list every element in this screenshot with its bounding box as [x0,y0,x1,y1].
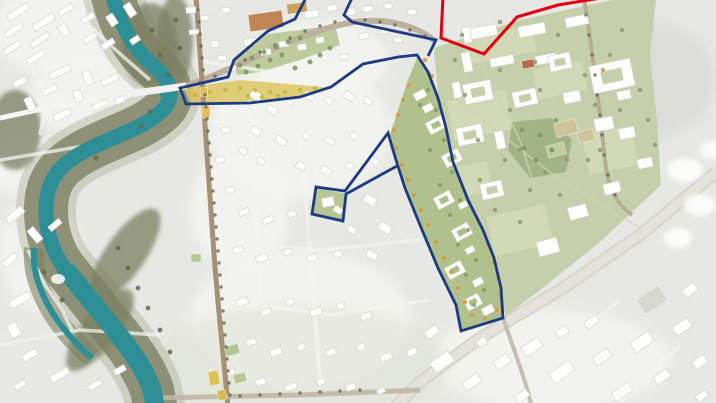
tree-icon [166,73,171,78]
tree-icon [268,90,273,95]
buildings [297,43,307,50]
tree-icon [593,73,596,76]
tree-icon [590,53,593,56]
tree-icon [338,389,341,392]
tree-icon [283,90,288,95]
buildings [408,9,417,15]
tree-icon [238,86,243,91]
tree-icon [246,94,251,99]
tree-icon [139,124,144,129]
tree-icon [225,357,228,360]
tree-icon [274,45,279,50]
tree-icon [288,36,291,39]
tree-icon [406,178,410,182]
tree-icon [593,103,597,107]
tree-icon [150,28,155,33]
tree-icon [587,33,590,36]
tree-icon [220,297,223,300]
tree-icon [442,256,446,260]
buildings [189,29,199,35]
tree-icon [550,148,555,153]
tree-icon [394,146,398,150]
tree-icon [224,345,227,348]
tree-icon [449,270,453,274]
tree-icon [318,53,323,58]
tree-icon [419,208,423,212]
tree-icon [483,316,487,320]
sports-fields-and-courts [191,254,201,262]
tree-icon [201,68,204,71]
tree-icon [448,213,452,217]
tree-icon [428,148,432,152]
tree-icon [226,369,229,372]
tree-icon [533,60,537,64]
tree-icon [298,391,301,394]
tree-icon [278,392,281,395]
tree-icon [554,118,558,122]
tree-icon [243,58,246,61]
tree-icon [646,118,650,122]
buildings [340,54,349,60]
tree-icon [298,88,303,93]
city-plan-map [0,0,716,403]
tree-icon [213,213,216,216]
buildings [186,7,196,14]
tree-icon [212,201,215,204]
buildings [359,32,370,39]
tree-icon [210,177,213,180]
tree-icon [463,93,467,97]
tree-icon [618,108,622,112]
tree-icon [256,64,261,69]
buildings [363,5,374,12]
tree-icon [276,94,281,99]
tree-icon [203,93,206,96]
tree-icon [193,93,198,98]
tree-icon [209,165,212,168]
tree-icon [219,285,222,288]
tree-icon [493,208,497,212]
tree-icon [538,88,542,92]
tree-icon [508,108,512,112]
tree-icon [528,188,532,192]
tree-icon [158,53,163,58]
tree-icon [638,88,642,92]
tree-icon [598,113,601,116]
sports-fields-and-courts [217,389,227,400]
tree-icon [227,381,230,384]
tree-icon [543,170,547,174]
tree-icon [565,158,569,162]
tree-icon [198,32,201,35]
tree-icon [601,68,605,72]
tree-icon [228,393,231,396]
tree-icon [558,193,562,197]
tree-icon [538,133,543,138]
tree-icon [472,303,476,307]
tree-icon [595,93,598,96]
tree-icon [482,288,486,292]
tree-icon [434,108,438,112]
tree-icon [426,88,430,92]
tree-icon [298,36,303,41]
buildings [211,40,220,48]
tree-icon [450,170,454,174]
tree-icon [268,58,273,63]
tree-icon [613,193,616,196]
tree-icon [456,243,460,247]
tree-icon [216,249,219,252]
tree-icon [215,237,218,240]
tree-icon [280,53,285,58]
tree-icon [458,198,462,202]
tree-icon [318,390,321,393]
buildings [316,36,325,43]
tree-icon [620,28,624,32]
tree-icon [556,33,560,37]
tree-icon [218,273,221,276]
tree-icon [146,306,151,311]
tree-icon [438,183,442,187]
tree-icon [518,220,522,224]
tree-icon [453,58,457,62]
tree-icon [464,273,468,277]
tree-icon [520,128,525,133]
tree-icon [470,313,474,317]
sports-fields-and-courts [521,59,534,69]
tree-icon [408,28,411,31]
tree-icon [126,266,131,271]
buildings [384,3,393,9]
tree-icon [313,86,318,91]
tree-icon [392,128,396,132]
tree-icon [260,95,265,100]
tree-icon [407,83,411,87]
tree-icon [303,29,306,32]
tree-icon [463,300,467,304]
tree-icon [223,88,228,93]
tree-icon [400,163,404,167]
tree-icon [598,148,602,152]
riverside-white-area [51,274,65,284]
tree-icon [401,98,405,102]
tree-icon [608,53,612,57]
tree-icon [136,286,141,291]
tree-icon [213,74,216,77]
tree-icon [442,138,446,142]
tree-icon [518,148,522,152]
tree-icon [503,158,507,162]
tree-icon [498,68,502,72]
tree-icon [474,258,478,262]
tree-icon [199,44,202,47]
tree-icon [238,63,243,68]
tree-icon [378,20,381,23]
tree-icon [460,33,464,37]
tree-icon [94,156,99,161]
tree-icon [178,46,183,51]
tree-icon [253,88,258,93]
tree-icon [318,24,321,27]
tree-icon [286,40,291,45]
tree-icon [333,20,336,23]
buildings [327,4,338,11]
tree-icon [196,8,199,11]
tree-icon [238,394,241,397]
tree-icon [262,50,267,55]
tree-icon [200,56,203,59]
tree-icon [211,189,214,192]
tree-icon [602,153,605,156]
buildings [201,15,209,21]
tree-icon [168,350,173,355]
tree-icon [206,129,209,132]
tree-icon [478,178,482,182]
tree-icon [204,105,207,108]
tree-icon [393,23,396,26]
tree-icon [396,113,400,117]
tree-icon [208,153,211,156]
tree-icon [606,173,609,176]
tree-icon [148,110,153,115]
tree-icon [586,158,590,162]
tree-icon [412,193,416,197]
tree-icon [308,60,313,65]
tree-icon [476,138,480,142]
tree-icon [600,133,603,136]
tree-icon [583,73,587,77]
map-canvas [0,0,716,403]
tree-icon [522,146,527,151]
tree-icon [258,50,261,53]
tree-icon [42,270,47,275]
tree-icon [221,309,224,312]
tree-icon [293,66,298,71]
tree-icon [653,143,657,147]
tree-icon [456,286,460,290]
tree-icon [60,298,65,303]
tree-icon [363,18,366,21]
tree-icon [116,246,121,251]
tree-icon [208,90,213,95]
tree-icon [258,393,261,396]
tree-icon [214,225,217,228]
buildings [394,37,403,43]
tree-icon [217,261,220,264]
tree-icon [222,321,225,324]
tree-icon [207,141,210,144]
tree-icon [423,58,427,62]
tree-icon [498,20,502,24]
tree-icon [158,328,163,333]
tree-icon [244,70,249,75]
tree-icon [205,117,208,120]
tree-icon [358,388,361,391]
tree-icon [328,46,333,51]
tree-icon [534,158,539,163]
tree-icon [418,103,422,107]
tree-icon [197,20,200,23]
tree-icon [223,333,226,336]
tree-icon [495,308,499,312]
tree-icon [434,240,438,244]
tree-icon [466,228,470,232]
tree-icon [174,18,179,23]
buildings [217,55,226,61]
sports-fields-and-courts [208,370,220,386]
buildings [222,7,230,13]
tree-icon [250,56,255,61]
tree-icon [584,13,587,16]
tree-icon [426,223,430,227]
